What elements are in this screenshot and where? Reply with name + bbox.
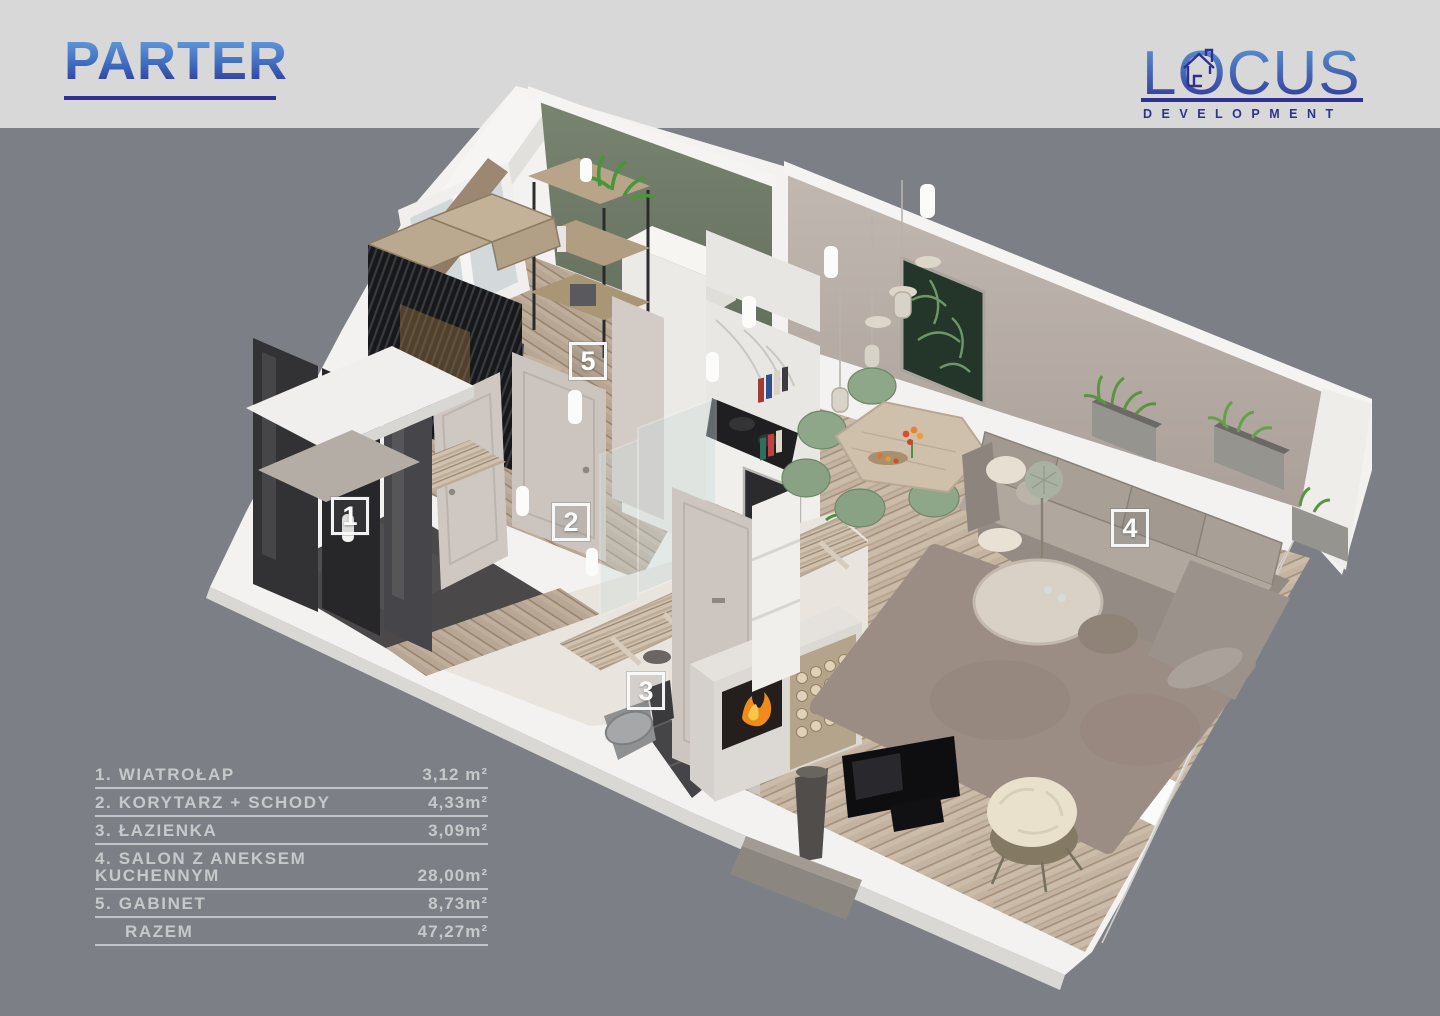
- legend-area: 8,73m²: [428, 895, 488, 912]
- legend-row-razem: RAZEM 47,27m²: [95, 923, 488, 946]
- legend-row-wiatrolap: 1. WIATROŁAP 3,12 m²: [95, 766, 488, 789]
- legend-label: 1. WIATROŁAP: [95, 766, 235, 783]
- area-legend: 1. WIATROŁAP 3,12 m² 2. KORYTARZ + SCHOD…: [95, 766, 488, 951]
- legend-row-lazienka: 3. ŁAZIENKA 3,09m²: [95, 822, 488, 845]
- room-marker-1: 1: [331, 497, 369, 535]
- room-marker-4: 4: [1111, 509, 1149, 547]
- legend-row-salon: 4. SALON Z ANEKSEM KUCHENNYM 28,00m²: [95, 850, 488, 890]
- legend-row-korytarz: 2. KORYTARZ + SCHODY 4,33m²: [95, 794, 488, 817]
- legend-area: 3,09m²: [428, 822, 488, 839]
- legend-label: 3. ŁAZIENKA: [95, 822, 217, 839]
- legend-label: 5. GABINET: [95, 895, 206, 912]
- legend-area: 28,00m²: [418, 867, 488, 884]
- legend-label: RAZEM: [95, 923, 193, 940]
- room-marker-5: 5: [569, 342, 607, 380]
- legend-row-gabinet: 5. GABINET 8,73m²: [95, 895, 488, 918]
- room-marker-2: 2: [552, 503, 590, 541]
- legend-area: 47,27m²: [418, 923, 488, 940]
- legend-label: 4. SALON Z ANEKSEM KUCHENNYM: [95, 850, 418, 884]
- side-table: [1078, 614, 1138, 654]
- legend-area: 4,33m²: [428, 794, 488, 811]
- room-marker-3: 3: [627, 672, 665, 710]
- legend-area: 3,12 m²: [422, 766, 488, 783]
- legend-label: 2. KORYTARZ + SCHODY: [95, 794, 331, 811]
